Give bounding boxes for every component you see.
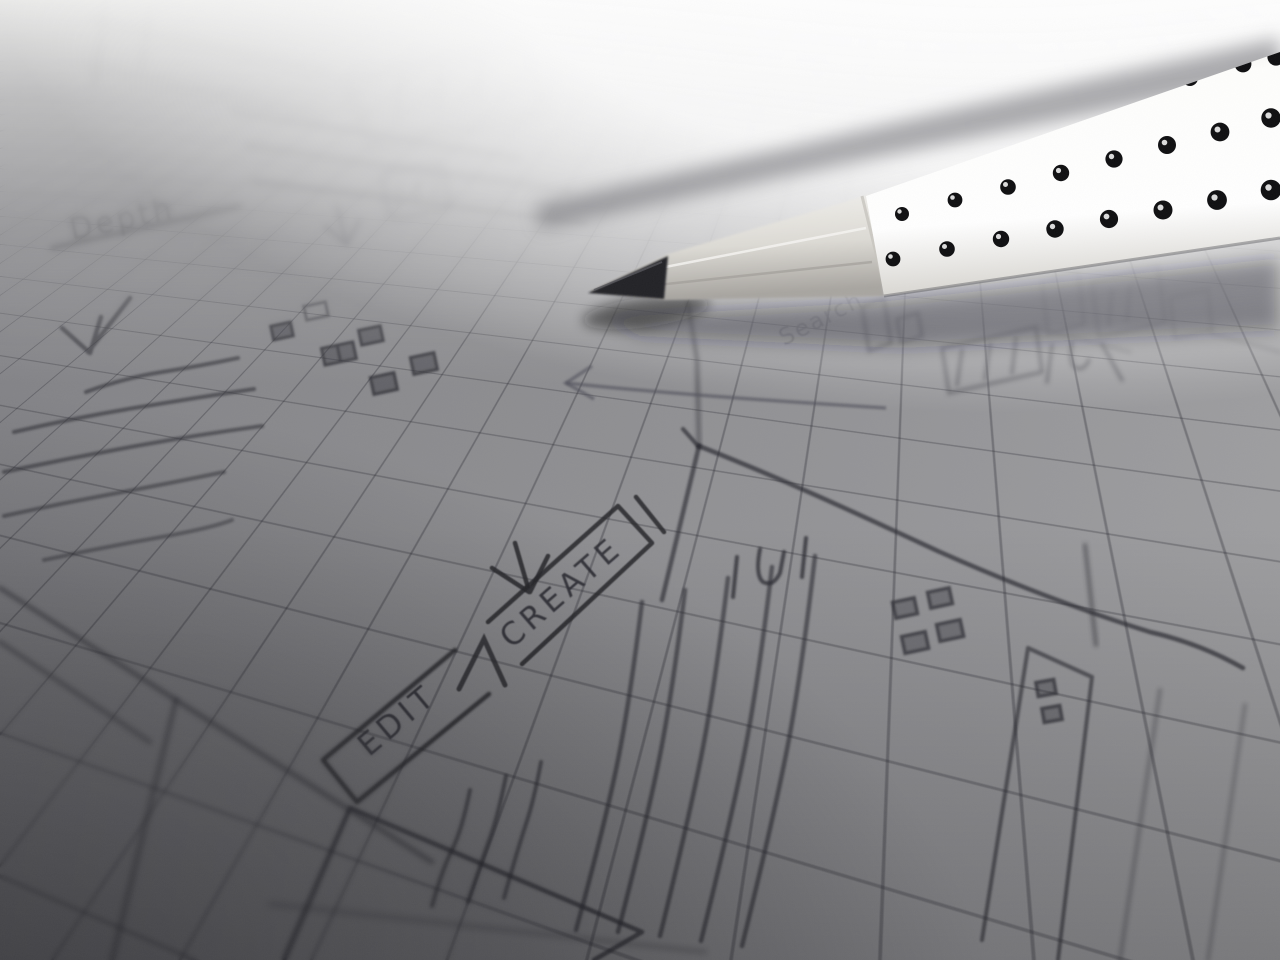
paper-grain-noise: [0, 0, 1280, 960]
photo-wireframe-sketch: Depth: [0, 0, 1280, 960]
pencil-layer: [0, 0, 1280, 960]
